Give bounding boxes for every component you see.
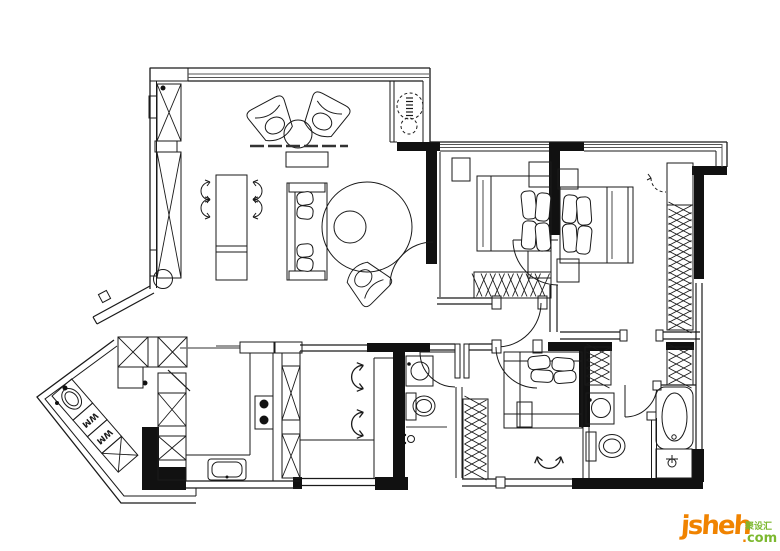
bathtub-basin xyxy=(662,393,687,441)
pillow xyxy=(527,355,550,370)
bathtub-drain xyxy=(672,435,676,439)
plan-line xyxy=(669,314,692,326)
pillow xyxy=(562,224,578,253)
plan-line xyxy=(669,223,692,235)
plan-line xyxy=(669,286,692,298)
faucet-dot xyxy=(226,476,229,479)
plan-line xyxy=(669,202,692,214)
faucet-dot xyxy=(588,398,591,401)
faucet-dot xyxy=(55,401,59,405)
bath-sink xyxy=(592,399,611,418)
plan-line xyxy=(669,234,692,246)
toilet-tank xyxy=(586,432,596,461)
chair-tip xyxy=(205,217,210,219)
pocket-door xyxy=(464,344,469,378)
door-jamb xyxy=(656,330,663,341)
dot-marker xyxy=(161,86,166,91)
kitchen-sink-basin xyxy=(212,462,242,477)
tv-cabinet xyxy=(286,152,328,167)
plan-line xyxy=(669,248,692,260)
plan-line xyxy=(669,318,692,330)
shelf xyxy=(452,158,470,181)
dot-marker xyxy=(63,386,68,391)
entry-counter xyxy=(118,367,143,388)
toilet-bowl-inner xyxy=(417,400,432,413)
bed-headboard xyxy=(477,176,491,251)
cabinet-hatch xyxy=(102,436,138,472)
kitchen-cabinet xyxy=(158,426,186,436)
faucet-dot xyxy=(404,434,406,436)
jsheh-watermark: jsheh 聚设汇 .com xyxy=(681,515,780,551)
toilet-tank xyxy=(406,393,416,420)
plan-line xyxy=(522,274,532,297)
desk-chair xyxy=(352,410,364,439)
wall-black xyxy=(397,142,440,151)
plan-line xyxy=(669,311,692,323)
armchair-body xyxy=(298,90,352,144)
plan-line xyxy=(669,206,692,218)
washing-machine-label: WM xyxy=(94,427,114,446)
pillow xyxy=(562,194,578,223)
plan-line xyxy=(669,300,692,312)
chair-tip xyxy=(357,436,364,439)
plan-line xyxy=(517,274,527,297)
plan-line xyxy=(508,274,518,297)
bath-sink xyxy=(411,362,429,380)
nightstand xyxy=(529,162,551,187)
armchair xyxy=(298,90,352,144)
wardrobe-hatch xyxy=(472,274,550,297)
sofa-cushion xyxy=(296,243,313,257)
floor-plan-canvas: WMWM jsheh 聚设汇 .com xyxy=(0,0,780,551)
watermark-domain: .com xyxy=(742,531,777,546)
dining-table xyxy=(216,175,247,280)
bath-counter xyxy=(656,449,692,478)
entry-cabinet xyxy=(118,337,148,367)
plan-line xyxy=(669,272,692,284)
plan-line xyxy=(669,244,692,256)
floor-plan-svg: WMWM xyxy=(0,0,780,551)
plan-line xyxy=(490,274,500,297)
armchair xyxy=(340,255,394,309)
nightstand xyxy=(558,169,578,189)
door-jamb xyxy=(620,330,627,341)
plan-line xyxy=(477,274,487,297)
column-hatch xyxy=(282,420,300,434)
armchair-backline xyxy=(255,105,282,122)
plan-line xyxy=(669,251,692,263)
sliding-door-frame xyxy=(240,342,274,353)
wall-black xyxy=(549,142,584,151)
chair-tip xyxy=(561,457,564,464)
washing-machine-label: WM xyxy=(80,410,100,429)
dining-chair xyxy=(201,197,210,219)
plan-line xyxy=(669,283,692,295)
chair-tip xyxy=(253,217,258,219)
pillow xyxy=(535,222,551,251)
column-hatch xyxy=(282,353,300,366)
pocket-door xyxy=(455,344,460,378)
pillow xyxy=(531,369,554,383)
pillow xyxy=(521,221,537,250)
kitchen-cabinet xyxy=(158,393,186,426)
plan-line xyxy=(669,230,692,242)
bedroom-chair xyxy=(535,457,564,469)
plan-line xyxy=(102,436,138,472)
plan-line xyxy=(669,265,692,277)
chair-back xyxy=(352,412,364,435)
sofa-cushion xyxy=(296,191,314,206)
chair-back xyxy=(352,365,364,388)
dining-chair xyxy=(253,197,262,219)
pillow xyxy=(576,197,592,226)
plan-line xyxy=(669,220,692,232)
wall-black xyxy=(367,343,430,352)
laundry-sink-cabinet xyxy=(52,379,93,420)
sofa-cushion xyxy=(296,257,313,272)
armchair-body xyxy=(340,255,394,309)
plan-line xyxy=(669,258,692,270)
plan-line xyxy=(669,269,692,281)
bath-vanity xyxy=(586,393,614,424)
pillow xyxy=(554,370,577,384)
sofa-armrest xyxy=(289,183,325,192)
laundry-sink-basin xyxy=(62,389,81,408)
wall-shelf xyxy=(155,141,177,152)
wall-corner xyxy=(150,68,188,81)
plan-line xyxy=(486,274,496,297)
wall-black xyxy=(572,478,703,489)
laundry-strip: WMWM xyxy=(52,379,138,472)
faucet-dot xyxy=(404,442,406,444)
plan-line xyxy=(669,307,692,319)
wall-black xyxy=(393,352,405,479)
plan-line xyxy=(540,274,550,297)
plan-line xyxy=(669,255,692,267)
floor-drain xyxy=(408,436,415,443)
faucet-dot xyxy=(407,362,411,366)
swing-symbol xyxy=(648,174,651,178)
laundry-sink xyxy=(58,385,86,414)
plan-line xyxy=(499,274,509,297)
entry-cabinet xyxy=(148,337,158,367)
armchair-body xyxy=(245,94,299,148)
stove-burner xyxy=(260,416,269,425)
kitchen-cabinet xyxy=(158,436,186,460)
column-hatch xyxy=(157,84,181,141)
balcony-rail xyxy=(97,293,154,324)
column-hatch xyxy=(282,434,300,478)
pillow xyxy=(551,357,574,372)
sofa-armrest xyxy=(289,271,325,280)
chair-tip xyxy=(253,180,258,182)
wall-black xyxy=(694,175,704,279)
plan-line xyxy=(669,304,692,316)
plan-line xyxy=(669,290,692,302)
ceiling-fan-symbol xyxy=(401,118,417,134)
plan-line xyxy=(669,227,692,239)
toilet-bowl-inner xyxy=(604,439,621,453)
armchair-backline xyxy=(315,101,342,118)
armchair-cushion xyxy=(310,110,335,134)
plan-line xyxy=(669,276,692,288)
side-table xyxy=(284,120,312,148)
sofa-cushion xyxy=(296,205,313,220)
swing-symbol xyxy=(651,178,666,192)
round-rug xyxy=(322,182,412,272)
stove-burner xyxy=(260,400,269,409)
plan-line xyxy=(481,274,491,297)
plan-line xyxy=(669,216,692,228)
plan-line xyxy=(513,274,523,297)
door-jamb xyxy=(647,412,656,420)
bed-headboard xyxy=(607,187,628,263)
pillow xyxy=(535,192,551,221)
plan-line xyxy=(669,321,692,333)
balcony-rail xyxy=(93,317,97,324)
plan-line xyxy=(669,237,692,249)
wall-black xyxy=(375,477,408,490)
toilet-bowl xyxy=(599,435,625,458)
door-arc xyxy=(420,352,455,387)
desk-chair xyxy=(352,363,364,392)
rail-post xyxy=(98,290,110,302)
chair-tip xyxy=(205,180,210,182)
chair-tip xyxy=(357,363,364,366)
plan-line xyxy=(669,279,692,291)
pillow xyxy=(576,225,593,254)
column-hatch xyxy=(282,366,300,420)
wall-black xyxy=(692,166,727,175)
wall-cap xyxy=(275,342,302,353)
column-hatch xyxy=(157,152,181,278)
plan-line xyxy=(669,209,692,221)
armchair xyxy=(245,94,299,148)
wardrobe-hatch xyxy=(669,344,692,388)
plan-line xyxy=(669,213,692,225)
swing-symbol xyxy=(647,178,651,180)
plan-line xyxy=(669,297,692,309)
plan-line xyxy=(669,293,692,305)
wardrobe-hatch xyxy=(465,396,487,480)
closet-cabinet xyxy=(667,163,693,205)
watermark-tld: com xyxy=(747,531,777,546)
coffee-table xyxy=(334,211,366,243)
chair-tip xyxy=(535,457,538,464)
door-jamb xyxy=(496,477,505,488)
wall-black xyxy=(293,477,302,489)
plan-line xyxy=(669,262,692,274)
plan-line xyxy=(535,274,545,297)
chair-tip xyxy=(357,410,364,413)
wall-black xyxy=(426,150,437,264)
plan-line xyxy=(504,274,514,297)
plan-line xyxy=(495,274,505,297)
door-jamb xyxy=(533,340,542,353)
entry-cabinet xyxy=(158,337,187,367)
wall-black xyxy=(692,449,704,482)
plan-line xyxy=(669,241,692,253)
wardrobe-hatch xyxy=(669,202,692,333)
watermark-brand: jsheh xyxy=(680,511,751,541)
chair-tip xyxy=(357,389,364,392)
plan-line xyxy=(526,274,536,297)
chair-back xyxy=(537,457,560,469)
